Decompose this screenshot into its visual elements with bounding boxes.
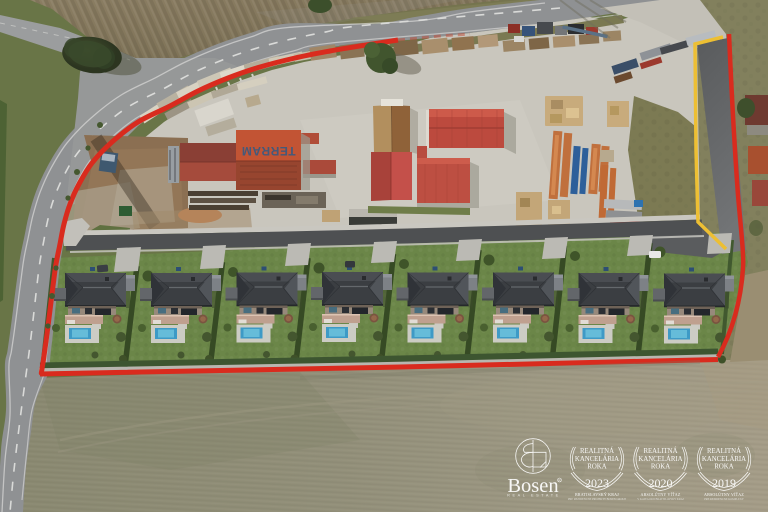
svg-text:KANCELÁRIA: KANCELÁRIA [575, 455, 619, 463]
svg-text:V KATEGÓRII BRATISLAVSKÝ KRAJ: V KATEGÓRII BRATISLAVSKÝ KRAJ [637, 498, 685, 501]
svg-text:KANCELÁRIA: KANCELÁRIA [702, 455, 746, 463]
svg-text:ROKA: ROKA [651, 464, 670, 471]
svg-text:REALITNÁ: REALITNÁ [707, 447, 741, 455]
svg-text:REAL ESTATE: REAL ESTATE [507, 494, 561, 498]
svg-text:ROKA: ROKA [714, 464, 733, 471]
svg-text:2023: 2023 [585, 476, 609, 490]
svg-text:TERRAM: TERRAM [241, 144, 295, 158]
svg-text:ABSOLÚTNY VÍŤAZ: ABSOLÚTNY VÍŤAZ [641, 492, 681, 497]
svg-text:PRE REZIDENČNÉ PROJEKTY BOSEN: PRE REZIDENČNÉ PROJEKTY BOSEN GROUP [568, 498, 626, 501]
svg-text:REALITNÁ: REALITNÁ [580, 447, 614, 455]
svg-text:2020: 2020 [649, 476, 673, 490]
svg-text:PRE REZIDENČNÉ KOMPLEXY: PRE REZIDENČNÉ KOMPLEXY [704, 498, 744, 501]
svg-text:ROKA: ROKA [587, 464, 606, 471]
svg-text:KANCELÁRIA: KANCELÁRIA [638, 455, 682, 463]
svg-text:REALITNÁ: REALITNÁ [644, 447, 678, 455]
svg-text:ABSOLÚTNY VÍŤAZ: ABSOLÚTNY VÍŤAZ [704, 492, 744, 497]
svg-text:2019: 2019 [712, 476, 736, 490]
svg-text:BRATISLAVSKÝ KRAJ: BRATISLAVSKÝ KRAJ [575, 492, 619, 497]
